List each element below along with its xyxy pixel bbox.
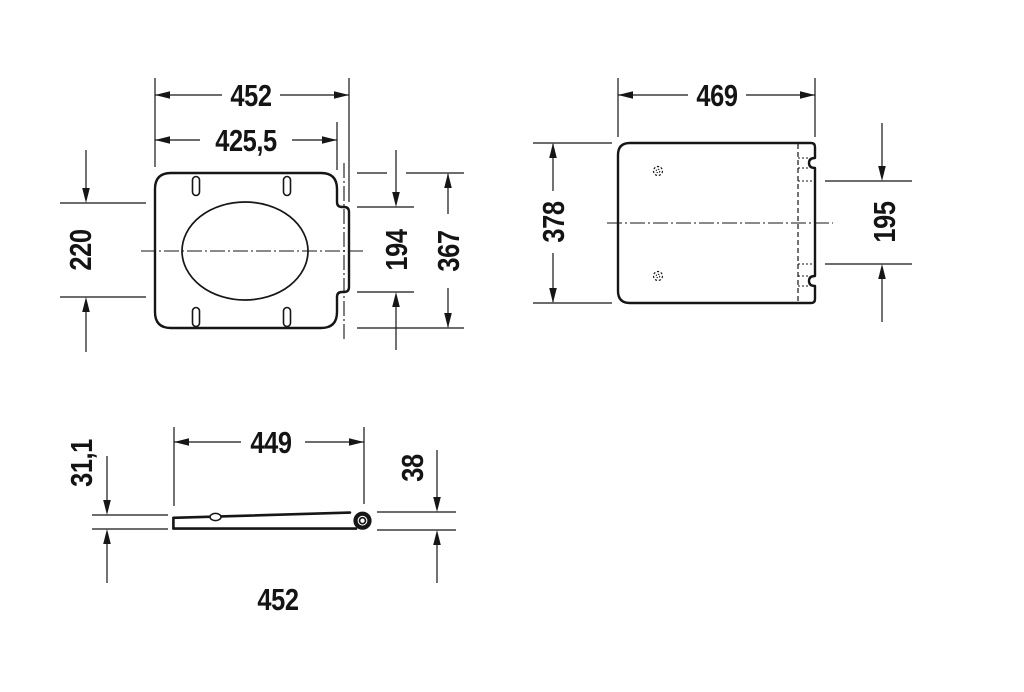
dim-label: 469: [696, 79, 737, 114]
arrowhead: [155, 91, 170, 99]
hinge-strip-dotted-lines: [798, 158, 815, 286]
screw-hole: [654, 272, 663, 281]
dim-side-hinge-height: 38: [377, 450, 456, 583]
dim-label: 452: [230, 79, 271, 114]
arrowhead: [322, 136, 337, 144]
arrowhead: [549, 288, 557, 303]
seat-bumper: [210, 513, 221, 520]
dim-seat-body-width: 425,5: [155, 122, 337, 170]
dim-label: 425,5: [215, 124, 277, 159]
toilet-seat-dimension-drawing: 452 425,5 220 194: [0, 0, 1024, 692]
lid-outline: [618, 143, 815, 303]
arrowhead: [433, 530, 441, 545]
arrowhead: [349, 438, 364, 446]
dim-label: 449: [250, 426, 291, 461]
seat-profile-outline: [173, 513, 356, 529]
dim-label: 195: [868, 201, 903, 242]
screw-hole-outer: [654, 272, 663, 281]
dim-label: 220: [64, 229, 99, 270]
dim-label: 38: [396, 454, 431, 481]
arrowhead: [392, 292, 400, 307]
arrowhead: [878, 264, 886, 279]
dim-lid-hinge-cutout: 195: [825, 123, 912, 322]
dim-label-overall-length: 452: [257, 583, 298, 618]
arrowhead: [174, 438, 189, 446]
arrowhead: [155, 136, 170, 144]
dim-seat-hinge-cutout: 194: [357, 150, 415, 350]
arrowhead: [444, 173, 452, 188]
arrowhead: [433, 497, 441, 512]
dim-label: 378: [537, 201, 572, 242]
extension-line: [377, 512, 456, 530]
technical-drawing-page: 452 425,5 220 194: [0, 0, 1024, 692]
lid-top-view: 469 378 195: [533, 78, 912, 322]
dim-side-front-height: 31,1: [65, 439, 168, 583]
dim-seat-opening-depth: 220: [60, 150, 146, 352]
arrowhead: [878, 166, 886, 181]
seat-slot: [284, 308, 291, 327]
dim-label: 194: [380, 229, 415, 271]
extension-line: [92, 515, 168, 529]
arrowhead: [82, 188, 90, 203]
arrowhead: [549, 143, 557, 158]
dim-lid-overall-width: 469: [618, 78, 815, 137]
dim-lid-overall-depth: 378: [533, 143, 612, 303]
seat-slot: [193, 177, 200, 196]
arrowhead: [103, 500, 111, 515]
seat-top-view: 452 425,5 220 194: [60, 78, 467, 352]
screw-hole-outer: [654, 167, 663, 176]
seat-slot: [284, 177, 291, 196]
dim-side-length-to-hinge: 449: [174, 426, 364, 506]
dim-label: 367: [432, 230, 467, 271]
seat-slot: [193, 308, 200, 327]
screw-hole-inner: [656, 169, 660, 173]
screw-hole: [654, 167, 663, 176]
screw-hole-inner: [656, 274, 660, 278]
dim-label: 31,1: [65, 439, 100, 487]
arrowhead: [334, 91, 349, 99]
arrowhead: [618, 91, 633, 99]
hinge-pivot-outer: [356, 514, 370, 528]
arrowhead: [103, 529, 111, 544]
arrowhead: [392, 192, 400, 207]
arrowhead: [82, 297, 90, 312]
side-profile-view: 449 31,1 38 452: [65, 426, 456, 618]
arrowhead: [800, 91, 815, 99]
arrowhead: [444, 313, 452, 328]
